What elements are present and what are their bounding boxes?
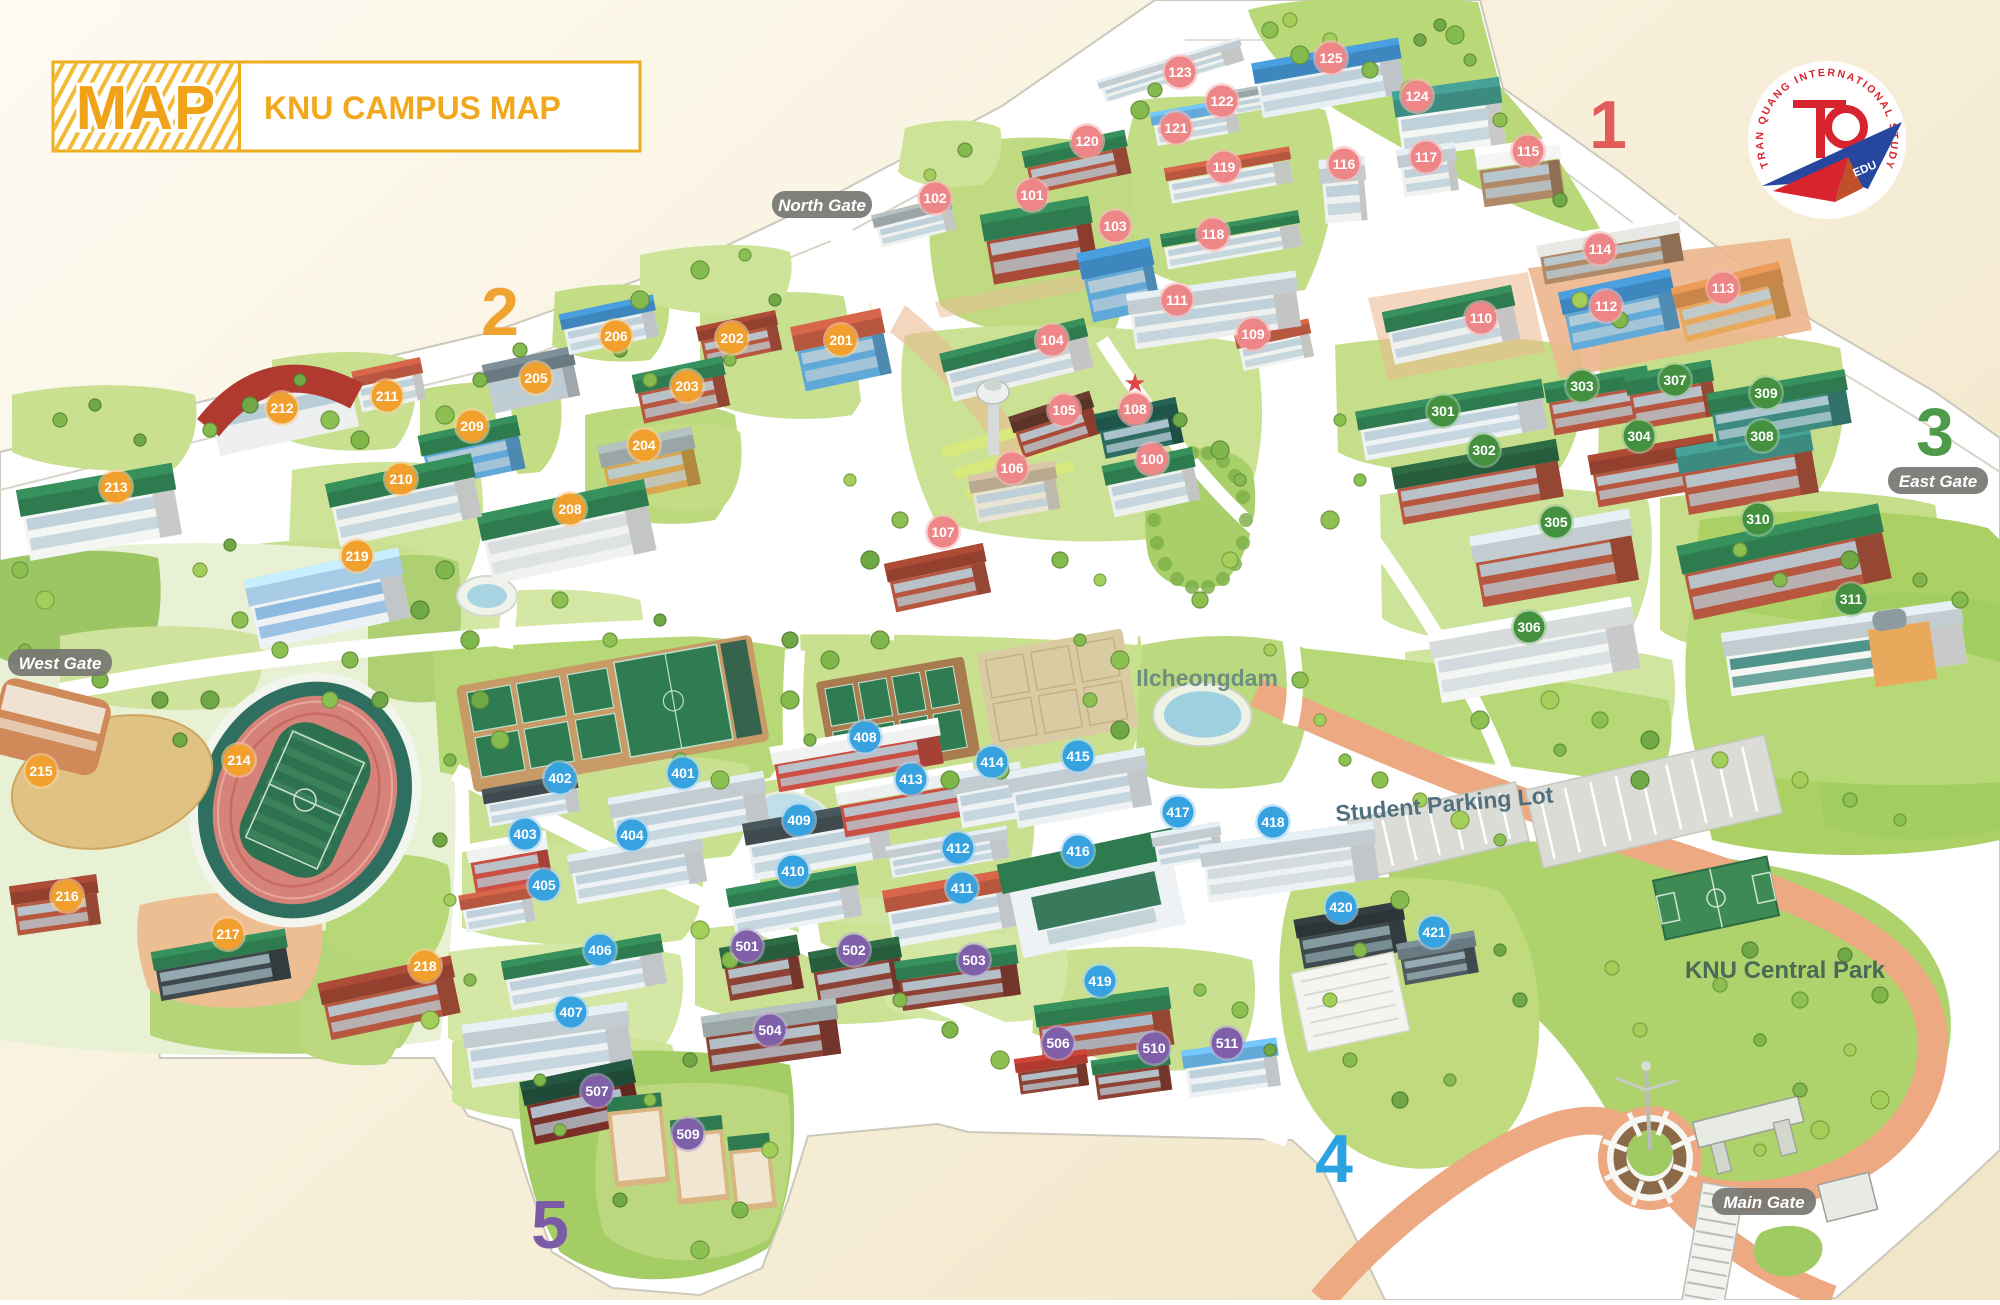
svg-text:4: 4 <box>1315 1121 1353 1197</box>
svg-text:405: 405 <box>532 877 556 893</box>
svg-text:108: 108 <box>1123 401 1147 417</box>
svg-text:307: 307 <box>1663 372 1687 388</box>
svg-text:413: 413 <box>899 771 923 787</box>
svg-text:414: 414 <box>980 754 1004 770</box>
svg-text:504: 504 <box>758 1022 782 1038</box>
svg-text:Main Gate: Main Gate <box>1723 1193 1804 1212</box>
svg-text:406: 406 <box>588 942 612 958</box>
svg-text:303: 303 <box>1570 378 1594 394</box>
svg-text:218: 218 <box>413 958 437 974</box>
svg-text:509: 509 <box>676 1126 700 1142</box>
svg-text:503: 503 <box>962 952 986 968</box>
svg-text:East Gate: East Gate <box>1899 472 1977 491</box>
svg-text:403: 403 <box>513 826 537 842</box>
svg-text:214: 214 <box>227 752 251 768</box>
svg-text:409: 409 <box>787 812 811 828</box>
svg-text:104: 104 <box>1040 332 1064 348</box>
svg-text:506: 506 <box>1046 1035 1070 1051</box>
svg-text:510: 510 <box>1142 1040 1166 1056</box>
svg-text:115: 115 <box>1517 143 1540 159</box>
svg-text:1: 1 <box>1589 87 1627 163</box>
svg-text:105: 105 <box>1052 402 1076 418</box>
svg-text:MAP: MAP <box>76 74 217 143</box>
svg-text:202: 202 <box>720 330 744 346</box>
svg-text:511: 511 <box>1216 1035 1239 1051</box>
svg-text:2: 2 <box>481 274 519 350</box>
svg-text:102: 102 <box>923 190 947 206</box>
svg-text:415: 415 <box>1066 748 1090 764</box>
svg-text:West Gate: West Gate <box>19 654 102 673</box>
svg-text:205: 205 <box>524 370 548 386</box>
svg-text:206: 206 <box>604 328 628 344</box>
svg-text:3: 3 <box>1916 394 1954 470</box>
svg-text:302: 302 <box>1472 442 1496 458</box>
svg-text:KNU CAMPUS MAP: KNU CAMPUS MAP <box>264 90 561 126</box>
svg-text:401: 401 <box>671 765 695 781</box>
svg-text:501: 501 <box>735 938 759 954</box>
svg-text:124: 124 <box>1405 88 1429 104</box>
svg-text:110: 110 <box>1470 310 1493 326</box>
svg-text:112: 112 <box>1595 298 1618 314</box>
svg-text:416: 416 <box>1066 843 1090 859</box>
svg-text:100: 100 <box>1140 451 1164 467</box>
svg-text:113: 113 <box>1712 280 1735 296</box>
svg-text:408: 408 <box>853 729 877 745</box>
svg-text:107: 107 <box>931 524 955 540</box>
svg-text:119: 119 <box>1213 159 1236 175</box>
svg-text:418: 418 <box>1261 814 1285 830</box>
svg-text:5: 5 <box>531 1187 569 1263</box>
svg-text:201: 201 <box>829 332 853 348</box>
svg-text:309: 309 <box>1754 385 1778 401</box>
svg-text:211: 211 <box>376 388 399 404</box>
svg-text:116: 116 <box>1333 156 1356 172</box>
svg-text:109: 109 <box>1241 326 1265 342</box>
svg-text:114: 114 <box>1589 241 1612 257</box>
svg-text:North Gate: North Gate <box>778 196 866 215</box>
svg-text:213: 213 <box>104 479 128 495</box>
svg-text:117: 117 <box>1415 149 1438 165</box>
svg-text:304: 304 <box>1627 428 1651 444</box>
svg-text:101: 101 <box>1020 187 1044 203</box>
svg-text:216: 216 <box>55 888 79 904</box>
svg-text:121: 121 <box>1164 120 1188 136</box>
svg-text:420: 420 <box>1329 899 1353 915</box>
svg-text:215: 215 <box>29 763 53 779</box>
svg-text:122: 122 <box>1210 93 1234 109</box>
svg-text:419: 419 <box>1088 973 1112 989</box>
svg-text:120: 120 <box>1075 133 1099 149</box>
svg-text:208: 208 <box>558 501 582 517</box>
svg-text:507: 507 <box>585 1083 609 1099</box>
svg-text:204: 204 <box>632 437 656 453</box>
svg-text:407: 407 <box>559 1004 583 1020</box>
svg-text:219: 219 <box>345 548 369 564</box>
svg-text:111: 111 <box>1166 292 1188 308</box>
svg-text:305: 305 <box>1544 514 1568 530</box>
svg-text:106: 106 <box>1000 460 1024 476</box>
svg-text:411: 411 <box>951 880 974 896</box>
svg-text:502: 502 <box>842 942 866 958</box>
svg-text:310: 310 <box>1746 511 1770 527</box>
svg-text:209: 209 <box>460 418 484 434</box>
svg-text:308: 308 <box>1750 428 1774 444</box>
svg-text:118: 118 <box>1202 226 1225 242</box>
svg-text:311: 311 <box>1840 591 1863 607</box>
svg-text:KNU Central Park: KNU Central Park <box>1685 957 1886 984</box>
svg-text:412: 412 <box>946 840 970 856</box>
svg-text:212: 212 <box>270 400 294 416</box>
svg-text:301: 301 <box>1431 403 1455 419</box>
svg-text:125: 125 <box>1319 50 1343 66</box>
svg-text:Ilcheongdam: Ilcheongdam <box>1136 665 1278 691</box>
svg-text:203: 203 <box>675 378 699 394</box>
svg-text:210: 210 <box>389 471 413 487</box>
svg-text:103: 103 <box>1103 218 1127 234</box>
svg-text:217: 217 <box>216 926 240 942</box>
svg-text:404: 404 <box>620 827 644 843</box>
svg-text:306: 306 <box>1517 619 1541 635</box>
svg-text:421: 421 <box>1422 924 1446 940</box>
svg-text:123: 123 <box>1168 64 1192 80</box>
svg-text:402: 402 <box>548 770 572 786</box>
svg-text:410: 410 <box>781 863 805 879</box>
svg-text:417: 417 <box>1166 804 1190 820</box>
